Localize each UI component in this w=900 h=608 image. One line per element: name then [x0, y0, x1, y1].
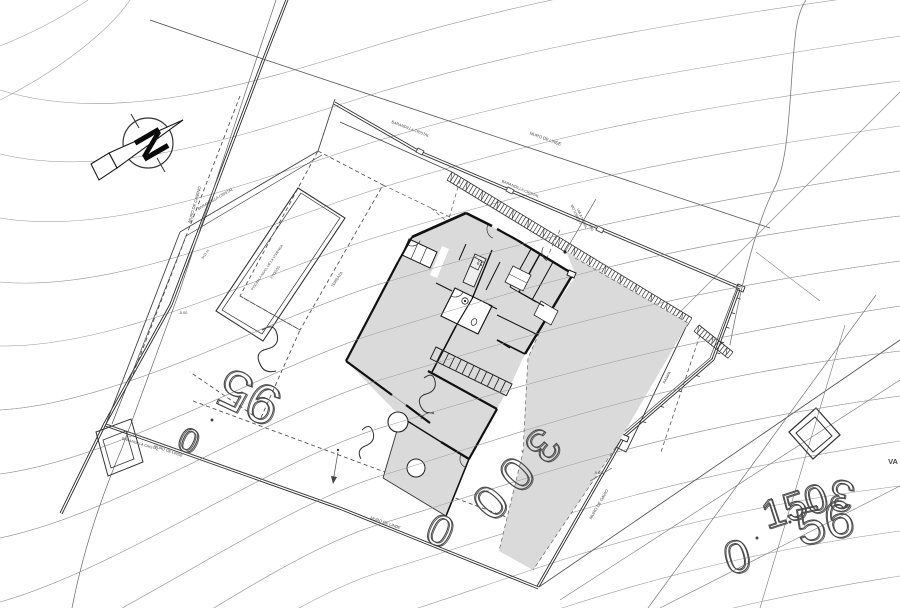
svg-text:VA: VA [888, 457, 898, 466]
svg-text:-5.00: -5.00 [179, 311, 188, 315]
